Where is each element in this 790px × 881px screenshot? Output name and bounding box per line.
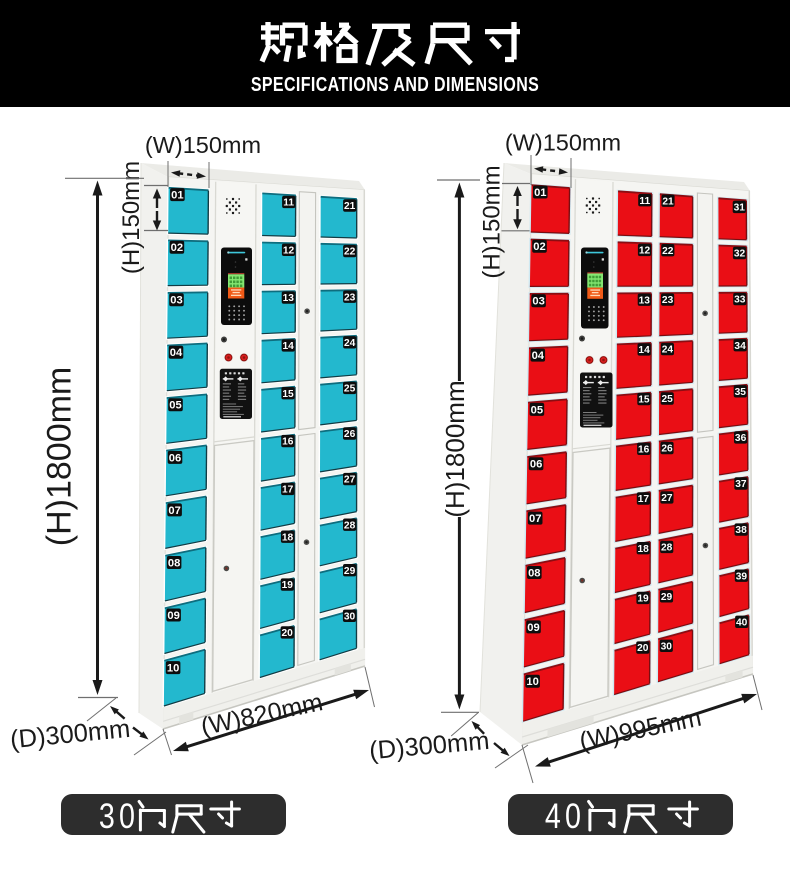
svg-text:07: 07 bbox=[168, 505, 180, 517]
svg-text:36: 36 bbox=[735, 433, 747, 444]
svg-text:04: 04 bbox=[170, 347, 183, 359]
svg-text:05: 05 bbox=[531, 404, 543, 416]
svg-text:15: 15 bbox=[282, 389, 294, 400]
svg-text:33: 33 bbox=[734, 295, 746, 306]
svg-text:(W)150mm: (W)150mm bbox=[145, 132, 261, 158]
svg-text:18: 18 bbox=[638, 544, 650, 555]
svg-text:22: 22 bbox=[344, 247, 356, 258]
svg-text:31: 31 bbox=[734, 203, 746, 214]
svg-text:13: 13 bbox=[283, 293, 295, 304]
svg-text:06: 06 bbox=[530, 459, 542, 471]
svg-text:06: 06 bbox=[169, 452, 181, 464]
svg-text:22: 22 bbox=[662, 246, 674, 257]
svg-text:16: 16 bbox=[282, 437, 294, 448]
svg-text:01: 01 bbox=[534, 187, 546, 199]
svg-text:25: 25 bbox=[344, 384, 356, 395]
svg-text:34: 34 bbox=[734, 341, 746, 352]
svg-text:10: 10 bbox=[526, 676, 538, 688]
svg-text:30: 30 bbox=[99, 796, 139, 835]
svg-text:08: 08 bbox=[168, 557, 180, 569]
svg-text:18: 18 bbox=[282, 532, 294, 543]
svg-text:38: 38 bbox=[735, 525, 747, 536]
svg-text:30: 30 bbox=[344, 611, 356, 622]
svg-text:15: 15 bbox=[638, 395, 650, 406]
svg-text:07: 07 bbox=[529, 513, 541, 525]
svg-text:12: 12 bbox=[283, 245, 295, 256]
svg-text:39: 39 bbox=[736, 571, 748, 582]
svg-text:03: 03 bbox=[532, 296, 544, 308]
svg-text:(H)150mm: (H)150mm bbox=[479, 165, 506, 278]
svg-text:(H)1800mm: (H)1800mm bbox=[41, 367, 79, 546]
svg-text:27: 27 bbox=[344, 475, 356, 486]
svg-text:19: 19 bbox=[282, 580, 294, 591]
svg-text:19: 19 bbox=[637, 594, 649, 605]
svg-text:30: 30 bbox=[661, 641, 673, 652]
svg-text:17: 17 bbox=[638, 494, 650, 505]
svg-text:29: 29 bbox=[344, 566, 356, 577]
svg-text:23: 23 bbox=[344, 292, 356, 303]
svg-text:(W)150mm: (W)150mm bbox=[505, 130, 621, 156]
svg-text:32: 32 bbox=[734, 249, 746, 260]
svg-text:24: 24 bbox=[344, 338, 356, 349]
svg-text:26: 26 bbox=[344, 429, 356, 440]
svg-text:01: 01 bbox=[171, 190, 183, 202]
svg-text:13: 13 bbox=[639, 295, 651, 306]
svg-text:11: 11 bbox=[283, 198, 294, 209]
svg-text:28: 28 bbox=[661, 543, 673, 554]
svg-text:09: 09 bbox=[167, 610, 179, 622]
svg-text:37: 37 bbox=[735, 479, 747, 490]
svg-text:20: 20 bbox=[282, 628, 294, 639]
svg-text:25: 25 bbox=[662, 394, 674, 405]
svg-text:40: 40 bbox=[545, 796, 585, 835]
svg-text:23: 23 bbox=[662, 295, 674, 306]
svg-text:14: 14 bbox=[638, 345, 650, 356]
svg-text:SPECIFICATIONS AND DIMENSIONS: SPECIFICATIONS AND DIMENSIONS bbox=[251, 72, 539, 95]
svg-text:21: 21 bbox=[344, 201, 356, 212]
svg-text:28: 28 bbox=[344, 520, 356, 531]
svg-text:11: 11 bbox=[639, 196, 650, 207]
svg-text:16: 16 bbox=[638, 444, 650, 455]
svg-text:17: 17 bbox=[282, 485, 294, 496]
svg-text:10: 10 bbox=[167, 663, 179, 675]
svg-text:26: 26 bbox=[661, 444, 673, 455]
svg-text:12: 12 bbox=[639, 246, 651, 257]
svg-text:(H)1800mm: (H)1800mm bbox=[440, 380, 470, 517]
svg-text:02: 02 bbox=[171, 242, 183, 254]
svg-text:29: 29 bbox=[661, 592, 673, 603]
svg-text:27: 27 bbox=[661, 493, 673, 504]
svg-text:05: 05 bbox=[169, 400, 181, 412]
svg-text:20: 20 bbox=[637, 643, 649, 654]
svg-text:35: 35 bbox=[735, 387, 747, 398]
svg-text:02: 02 bbox=[533, 241, 545, 253]
svg-text:21: 21 bbox=[662, 196, 674, 207]
svg-text:03: 03 bbox=[170, 295, 182, 307]
svg-text:24: 24 bbox=[662, 345, 674, 356]
svg-text:04: 04 bbox=[532, 350, 545, 362]
svg-text:08: 08 bbox=[528, 567, 540, 579]
svg-text:09: 09 bbox=[527, 622, 539, 634]
svg-text:14: 14 bbox=[283, 341, 295, 352]
svg-text:40: 40 bbox=[736, 617, 748, 628]
